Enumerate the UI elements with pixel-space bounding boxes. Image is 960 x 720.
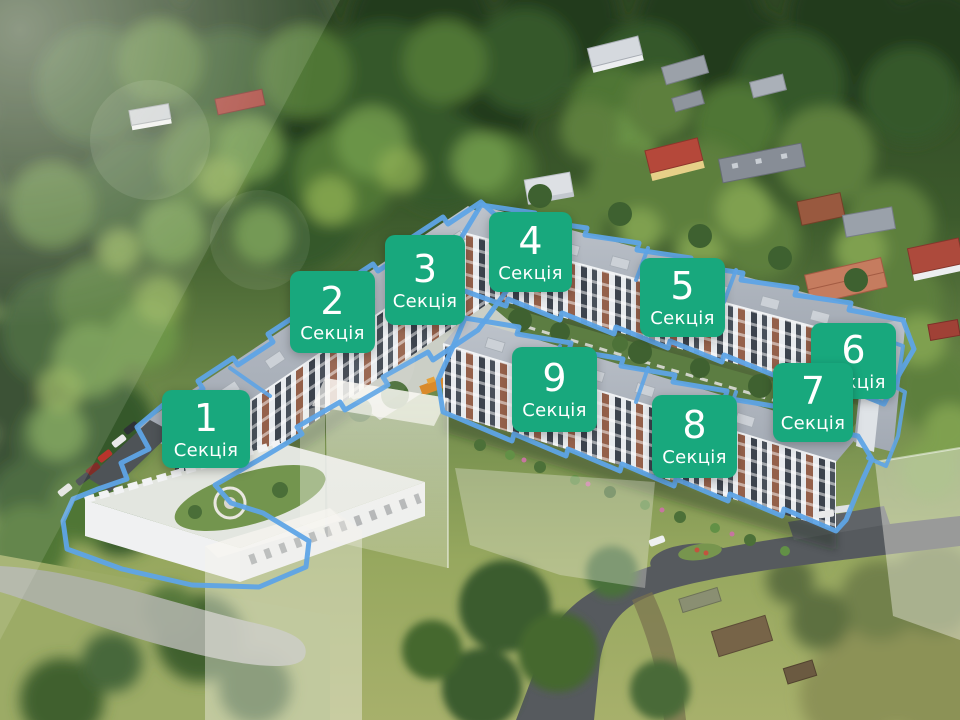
section-number: 7 xyxy=(801,372,825,410)
section-badge-1[interactable]: 1 Секція xyxy=(162,390,250,468)
section-number: 4 xyxy=(518,222,542,260)
section-badge-3[interactable]: 3 Секція xyxy=(385,235,465,325)
section-label: Секція xyxy=(522,402,586,420)
section-label: Секція xyxy=(662,449,726,467)
section-number: 8 xyxy=(682,406,706,444)
section-badge-2[interactable]: 2 Секція xyxy=(290,271,375,353)
section-badge-7[interactable]: 7 Секція xyxy=(773,363,853,442)
section-label: Секція xyxy=(498,265,562,283)
section-badge-5[interactable]: 5 Секція xyxy=(640,258,725,337)
section-number: 1 xyxy=(194,399,218,437)
section-label: Секція xyxy=(174,442,238,460)
siteplan-canvas: 1 Секція 2 Секція 3 Секція 4 Секція 5 Се… xyxy=(0,0,960,720)
section-badge-4[interactable]: 4 Секція xyxy=(489,212,572,292)
section-number: 9 xyxy=(542,359,566,397)
section-badge-9[interactable]: 9 Секція xyxy=(512,347,597,432)
section-label: Секція xyxy=(650,310,714,328)
section-badge-8[interactable]: 8 Секція xyxy=(652,395,737,478)
section-number: 5 xyxy=(670,267,694,305)
section-label: Секція xyxy=(300,325,364,343)
section-number: 2 xyxy=(320,282,344,320)
section-label: Секція xyxy=(393,293,457,311)
section-label: Секція xyxy=(781,415,845,433)
section-number: 3 xyxy=(413,250,437,288)
